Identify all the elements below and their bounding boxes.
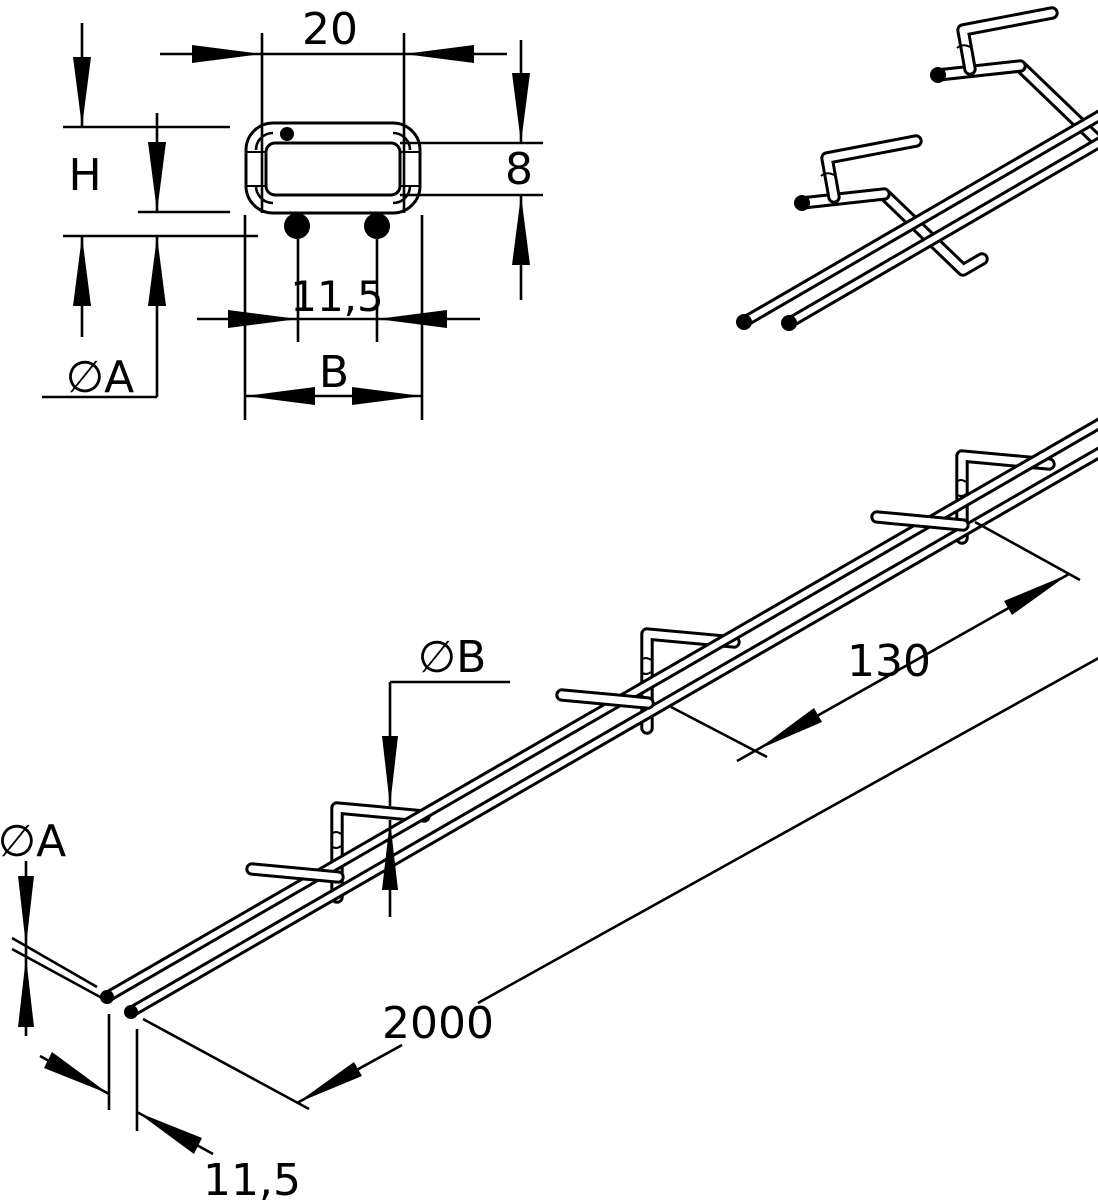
- profile-outer-outline: [246, 123, 420, 213]
- iso-wire-end-dot-1: [736, 314, 752, 330]
- run-wire-1: [107, 421, 1098, 997]
- dim-wire-diameter-A-side: ∅A: [0, 816, 102, 1036]
- hook-wire-end-dot: [280, 127, 294, 141]
- dim-label-wire-diameter-A-section: ∅A: [66, 352, 134, 403]
- dim-wire-spacing-11-5-side: 11,5: [40, 1014, 301, 1200]
- hook-3-arm: [877, 517, 963, 525]
- dim-wire-spacing-11-5-section: 11,5: [197, 239, 480, 342]
- hook-2-arm: [562, 695, 648, 703]
- iso-hook-arm-end-dot-lower: [794, 195, 810, 211]
- iso-hook-bar-upper: [957, 13, 1052, 69]
- dim-label-hook-diameter-B: ∅B: [418, 632, 487, 683]
- wire-end-dot-2: [124, 1005, 138, 1019]
- dim-label-hook-spacing-130: 130: [847, 636, 931, 687]
- technical-drawing-canvas: 20 8 H ∅A 11,5: [0, 0, 1098, 1200]
- dim-label-wire-diameter-A-side: ∅A: [0, 816, 66, 867]
- run-wire-dot-left: [284, 213, 310, 239]
- dim-label-wire-spacing-section: 11,5: [290, 272, 384, 321]
- dim-label-inner-height-8: 8: [505, 144, 533, 195]
- drawing-svg: 20 8 H ∅A 11,5: [0, 0, 1098, 1200]
- iso-hook-arm-lower: [802, 194, 884, 203]
- hook-1-arm: [252, 869, 338, 877]
- cross-section-view: 20 8 H ∅A 11,5: [42, 4, 543, 420]
- iso-detail-view: [736, 13, 1098, 331]
- iso-hook-arm-end-dot-upper: [930, 67, 946, 83]
- dim-label-width-20: 20: [302, 4, 358, 55]
- iso-wire-end-dot-2: [781, 315, 797, 331]
- iso-hook-brace-upper: [1022, 68, 1098, 142]
- dim-label-wire-spacing-side: 11,5: [203, 1155, 301, 1200]
- iso-hook-arm-upper: [938, 66, 1020, 75]
- run-wire-dot-right: [364, 213, 390, 239]
- dim-label-outer-width-B: B: [319, 347, 349, 398]
- iso-hook-bar-lower: [821, 141, 916, 197]
- dim-label-overall-height-H: H: [68, 150, 101, 201]
- dim-label-length-2000: 2000: [382, 998, 494, 1049]
- side-view: ∅B 130 2000 11,5 ∅A: [0, 421, 1098, 1200]
